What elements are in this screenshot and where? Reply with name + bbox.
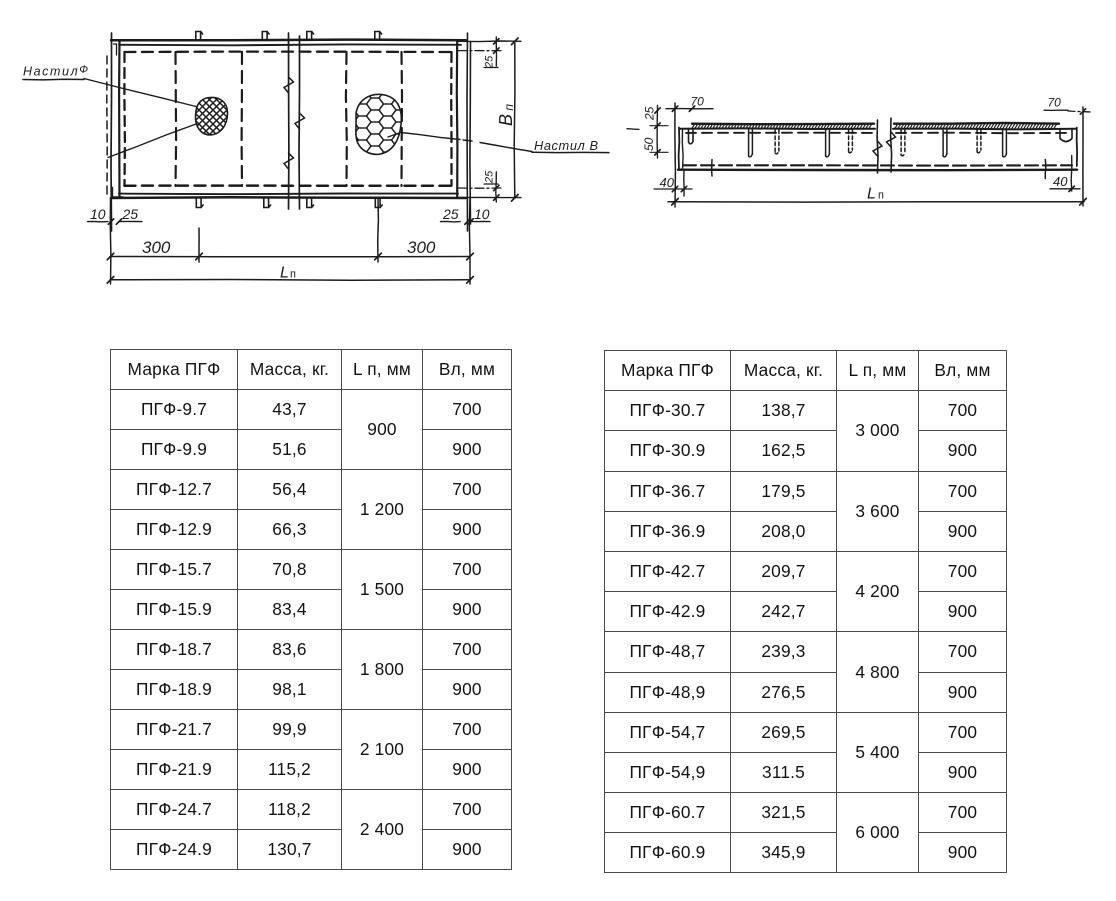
svg-text:25: 25	[643, 106, 657, 121]
svg-text:25: 25	[484, 55, 496, 69]
svg-text:Настил В: Настил В	[534, 138, 599, 153]
svg-text:70: 70	[1048, 96, 1062, 110]
svg-text:10: 10	[474, 206, 490, 222]
svg-text:L: L	[867, 186, 876, 203]
svg-text:L: L	[280, 265, 289, 282]
svg-text:300: 300	[142, 238, 171, 257]
svg-text:40: 40	[660, 175, 675, 190]
svg-text:п: п	[290, 269, 296, 281]
svg-text:НастилФ: НастилФ	[23, 64, 88, 79]
svg-text:40: 40	[1053, 174, 1068, 189]
svg-text:25: 25	[484, 170, 496, 184]
svg-text:300: 300	[407, 238, 436, 257]
svg-text:В п: В п	[496, 104, 516, 126]
svg-text:25: 25	[442, 206, 459, 222]
svg-text:70: 70	[691, 95, 705, 109]
svg-text:25: 25	[122, 206, 139, 222]
svg-text:50: 50	[642, 137, 656, 151]
svg-text:п: п	[878, 190, 884, 202]
svg-text:10: 10	[90, 206, 106, 222]
